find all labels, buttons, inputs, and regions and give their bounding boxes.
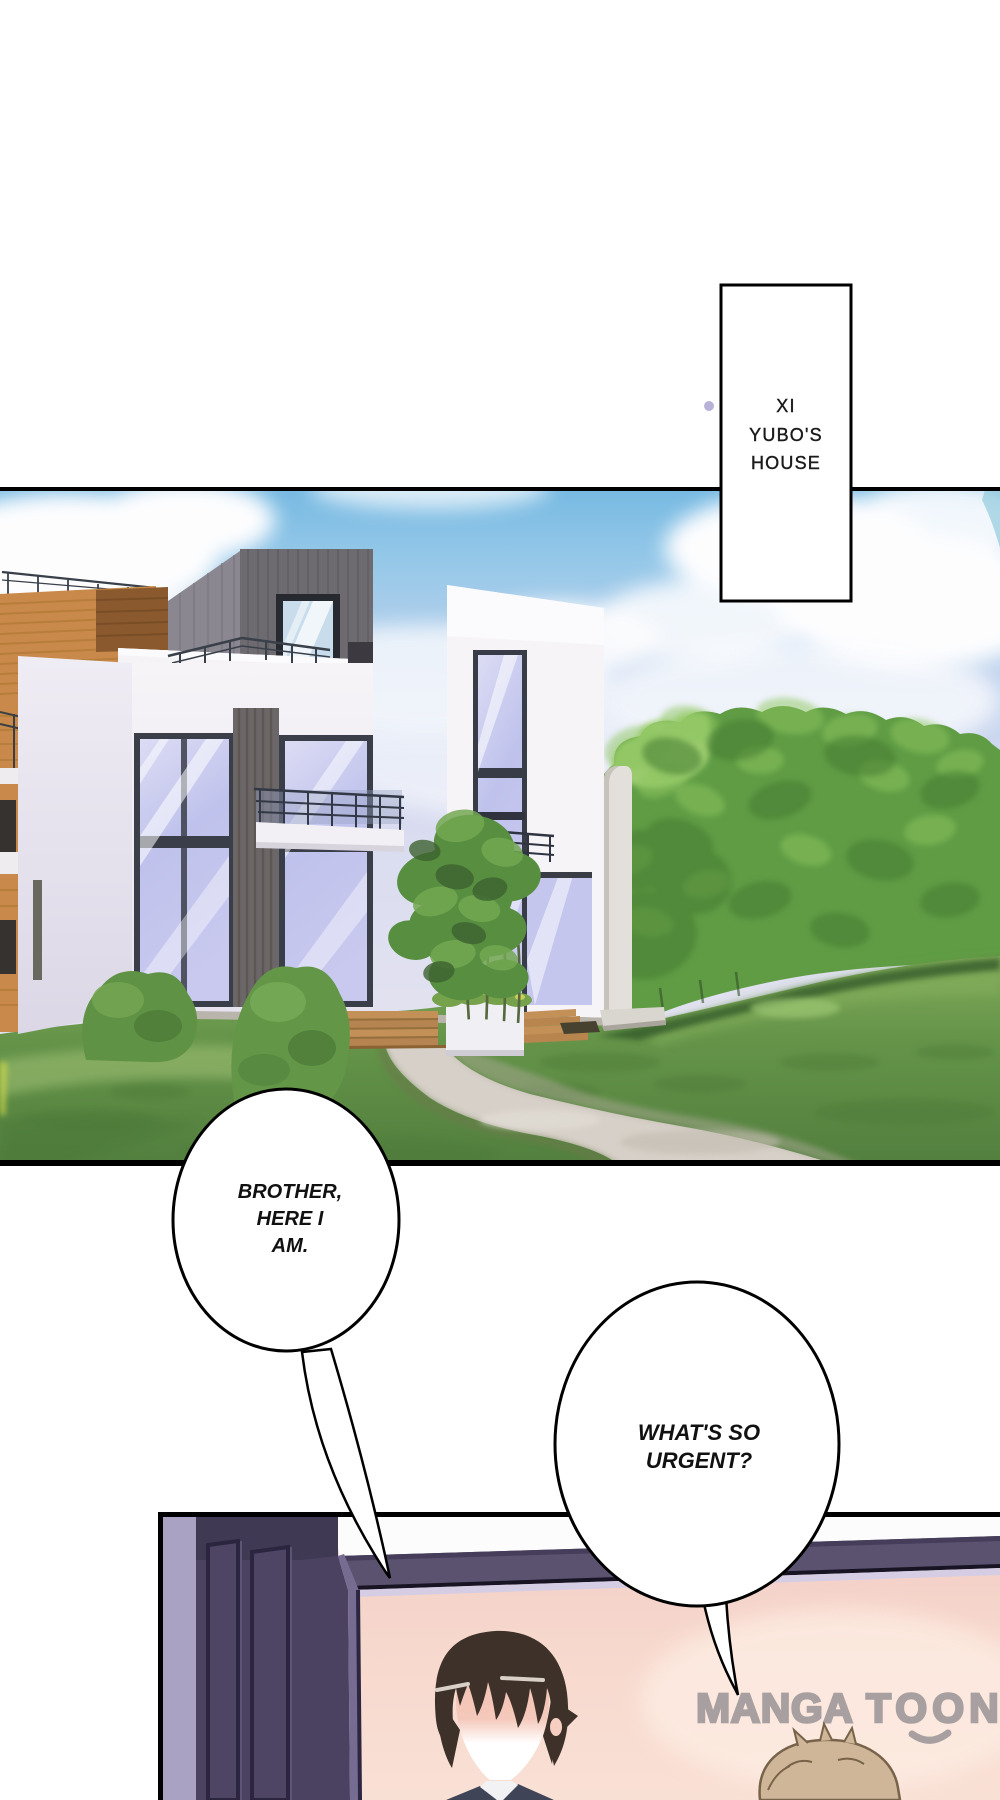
svg-text:WHAT'S SO: WHAT'S SO [638,1420,760,1445]
svg-text:BROTHER,: BROTHER, [238,1181,342,1203]
svg-text:URGENT?: URGENT? [646,1448,752,1473]
svg-text:HOUSE: HOUSE [751,453,821,473]
svg-text:HERE I: HERE I [257,1208,324,1230]
svg-text:TOON: TOON [866,1685,1000,1731]
svg-text:YUBO'S: YUBO'S [749,425,823,445]
svg-text:MANGA: MANGA [696,1685,853,1731]
svg-text:AM.: AM. [271,1235,309,1257]
svg-text:XI: XI [776,396,795,416]
